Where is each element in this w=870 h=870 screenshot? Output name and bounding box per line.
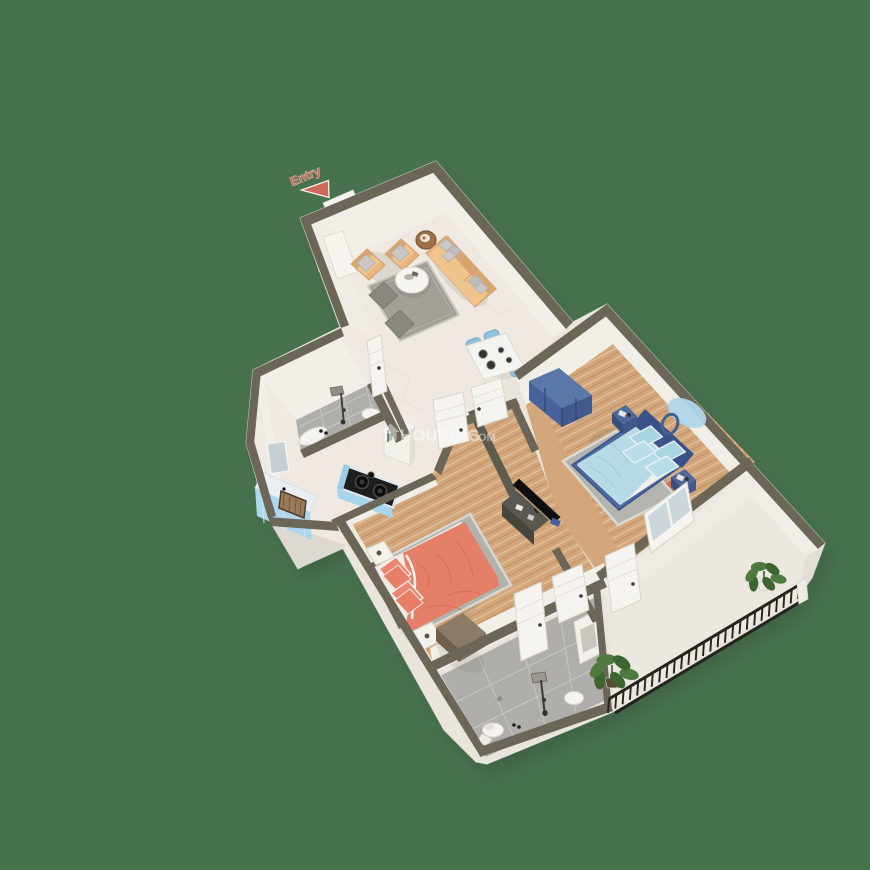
svg-text:.COM: .COM [467, 432, 496, 444]
